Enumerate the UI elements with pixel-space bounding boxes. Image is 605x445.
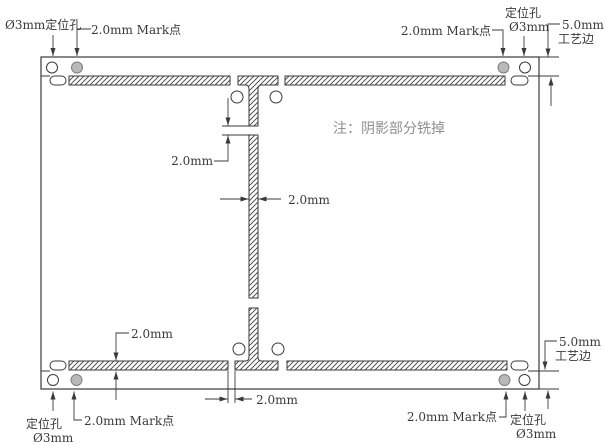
mark-point-top-right: [498, 62, 509, 73]
annotations: Ø3mm定位孔 2.0mm Mark点 2.0mm Mark点 定位孔 Ø3mm…: [5, 5, 604, 445]
milling-note: 注：阴影部分铣掉: [333, 121, 445, 137]
gap-extension-ticks: [222, 126, 249, 135]
board-hole-top-right-of-tee: [270, 91, 282, 103]
panel-drawing-canvas: Ø3mm定位孔 2.0mm Mark点 2.0mm Mark点 定位孔 Ø3mm…: [0, 0, 605, 445]
milling-slot-top-right-segment: [285, 76, 505, 85]
label-positioning-hole-top-right-line2: Ø3mm: [509, 20, 550, 34]
label-mark-point-bottom-right: 2.0mm Mark点: [407, 410, 497, 424]
positioning-hole-top-left: [47, 62, 58, 73]
positioning-hole-bottom-left: [48, 375, 59, 386]
milling-slot-center-vertical: [249, 135, 258, 298]
leader-bottom-right-mark: [499, 392, 506, 418]
rail-extension-lines: [539, 57, 559, 389]
label-dim-bottom-slot: 2.0mm: [131, 327, 173, 341]
panel-outline: [41, 57, 559, 389]
board-hole-bottom-left-of-tee: [233, 343, 245, 355]
milling-slot-bottom-tee: [235, 308, 278, 370]
label-mark-point-bottom-left: 2.0mm Mark点: [84, 414, 174, 428]
slot-relief-bottom-right: [511, 361, 528, 370]
mark-point-top-left: [72, 62, 83, 73]
positioning-hole-bottom-right: [519, 375, 530, 386]
slot-relief-bottom-left: [50, 361, 66, 370]
label-positioning-hole-bottom-right-line2: Ø3mm: [516, 427, 557, 441]
rail-edge-ticks: [41, 76, 539, 371]
positioning-hole-top-right: [520, 62, 531, 73]
label-mark-point-top-right: 2.0mm Mark点: [401, 24, 491, 38]
label-dim-strip-width: 2.0mm: [288, 193, 330, 207]
milling-slot-bottom-left-segment: [69, 361, 228, 370]
label-rail-bottom-line2: 工艺边: [555, 349, 591, 363]
label-dim-bottom-gap: 2.0mm: [256, 393, 298, 407]
board-hole-top-left-of-tee: [231, 91, 243, 103]
label-rail-bottom-line1: 5.0mm: [559, 335, 601, 349]
label-dim-top-gap: 2.0mm: [171, 154, 213, 168]
label-rail-top-line1: 5.0mm: [562, 18, 604, 32]
label-mark-point-top-left: 2.0mm Mark点: [91, 23, 181, 37]
slot-relief-top-left: [50, 76, 66, 85]
mark-point-bottom-left: [71, 375, 82, 386]
arrow-bottom-slot-upper: [116, 333, 129, 361]
label-positioning-hole-bottom-left-line1: 定位孔: [26, 416, 62, 431]
slot-relief-top-right: [511, 76, 528, 85]
leader-top-right-mark: [492, 30, 503, 56]
label-positioning-hole-bottom-left-line2: Ø3mm: [33, 431, 74, 445]
leader-top-left-mark: [77, 29, 91, 56]
label-positioning-hole-top-right-line1: 定位孔: [505, 5, 541, 20]
label-positioning-hole-top-left: Ø3mm定位孔: [5, 17, 81, 32]
label-rail-top-line2: 工艺边: [558, 32, 594, 46]
label-positioning-hole-bottom-right-line1: 定位孔: [510, 412, 546, 427]
milling-slot-bottom-right-segment: [287, 361, 507, 370]
holes-and-marks: [47, 62, 531, 386]
board-hole-bottom-right-of-tee: [272, 343, 284, 355]
milling-slot-top-left-segment: [69, 76, 230, 85]
mark-point-bottom-right: [499, 375, 510, 386]
leader-bottom-left-mark: [74, 392, 82, 421]
arrow-top-gap-lower: [214, 136, 228, 162]
bottom-gap-extension-lines: [228, 371, 235, 403]
slot-end-reliefs: [50, 76, 528, 370]
pcb-panel-drawing: Ø3mm定位孔 2.0mm Mark点 2.0mm Mark点 定位孔 Ø3mm…: [0, 0, 605, 445]
